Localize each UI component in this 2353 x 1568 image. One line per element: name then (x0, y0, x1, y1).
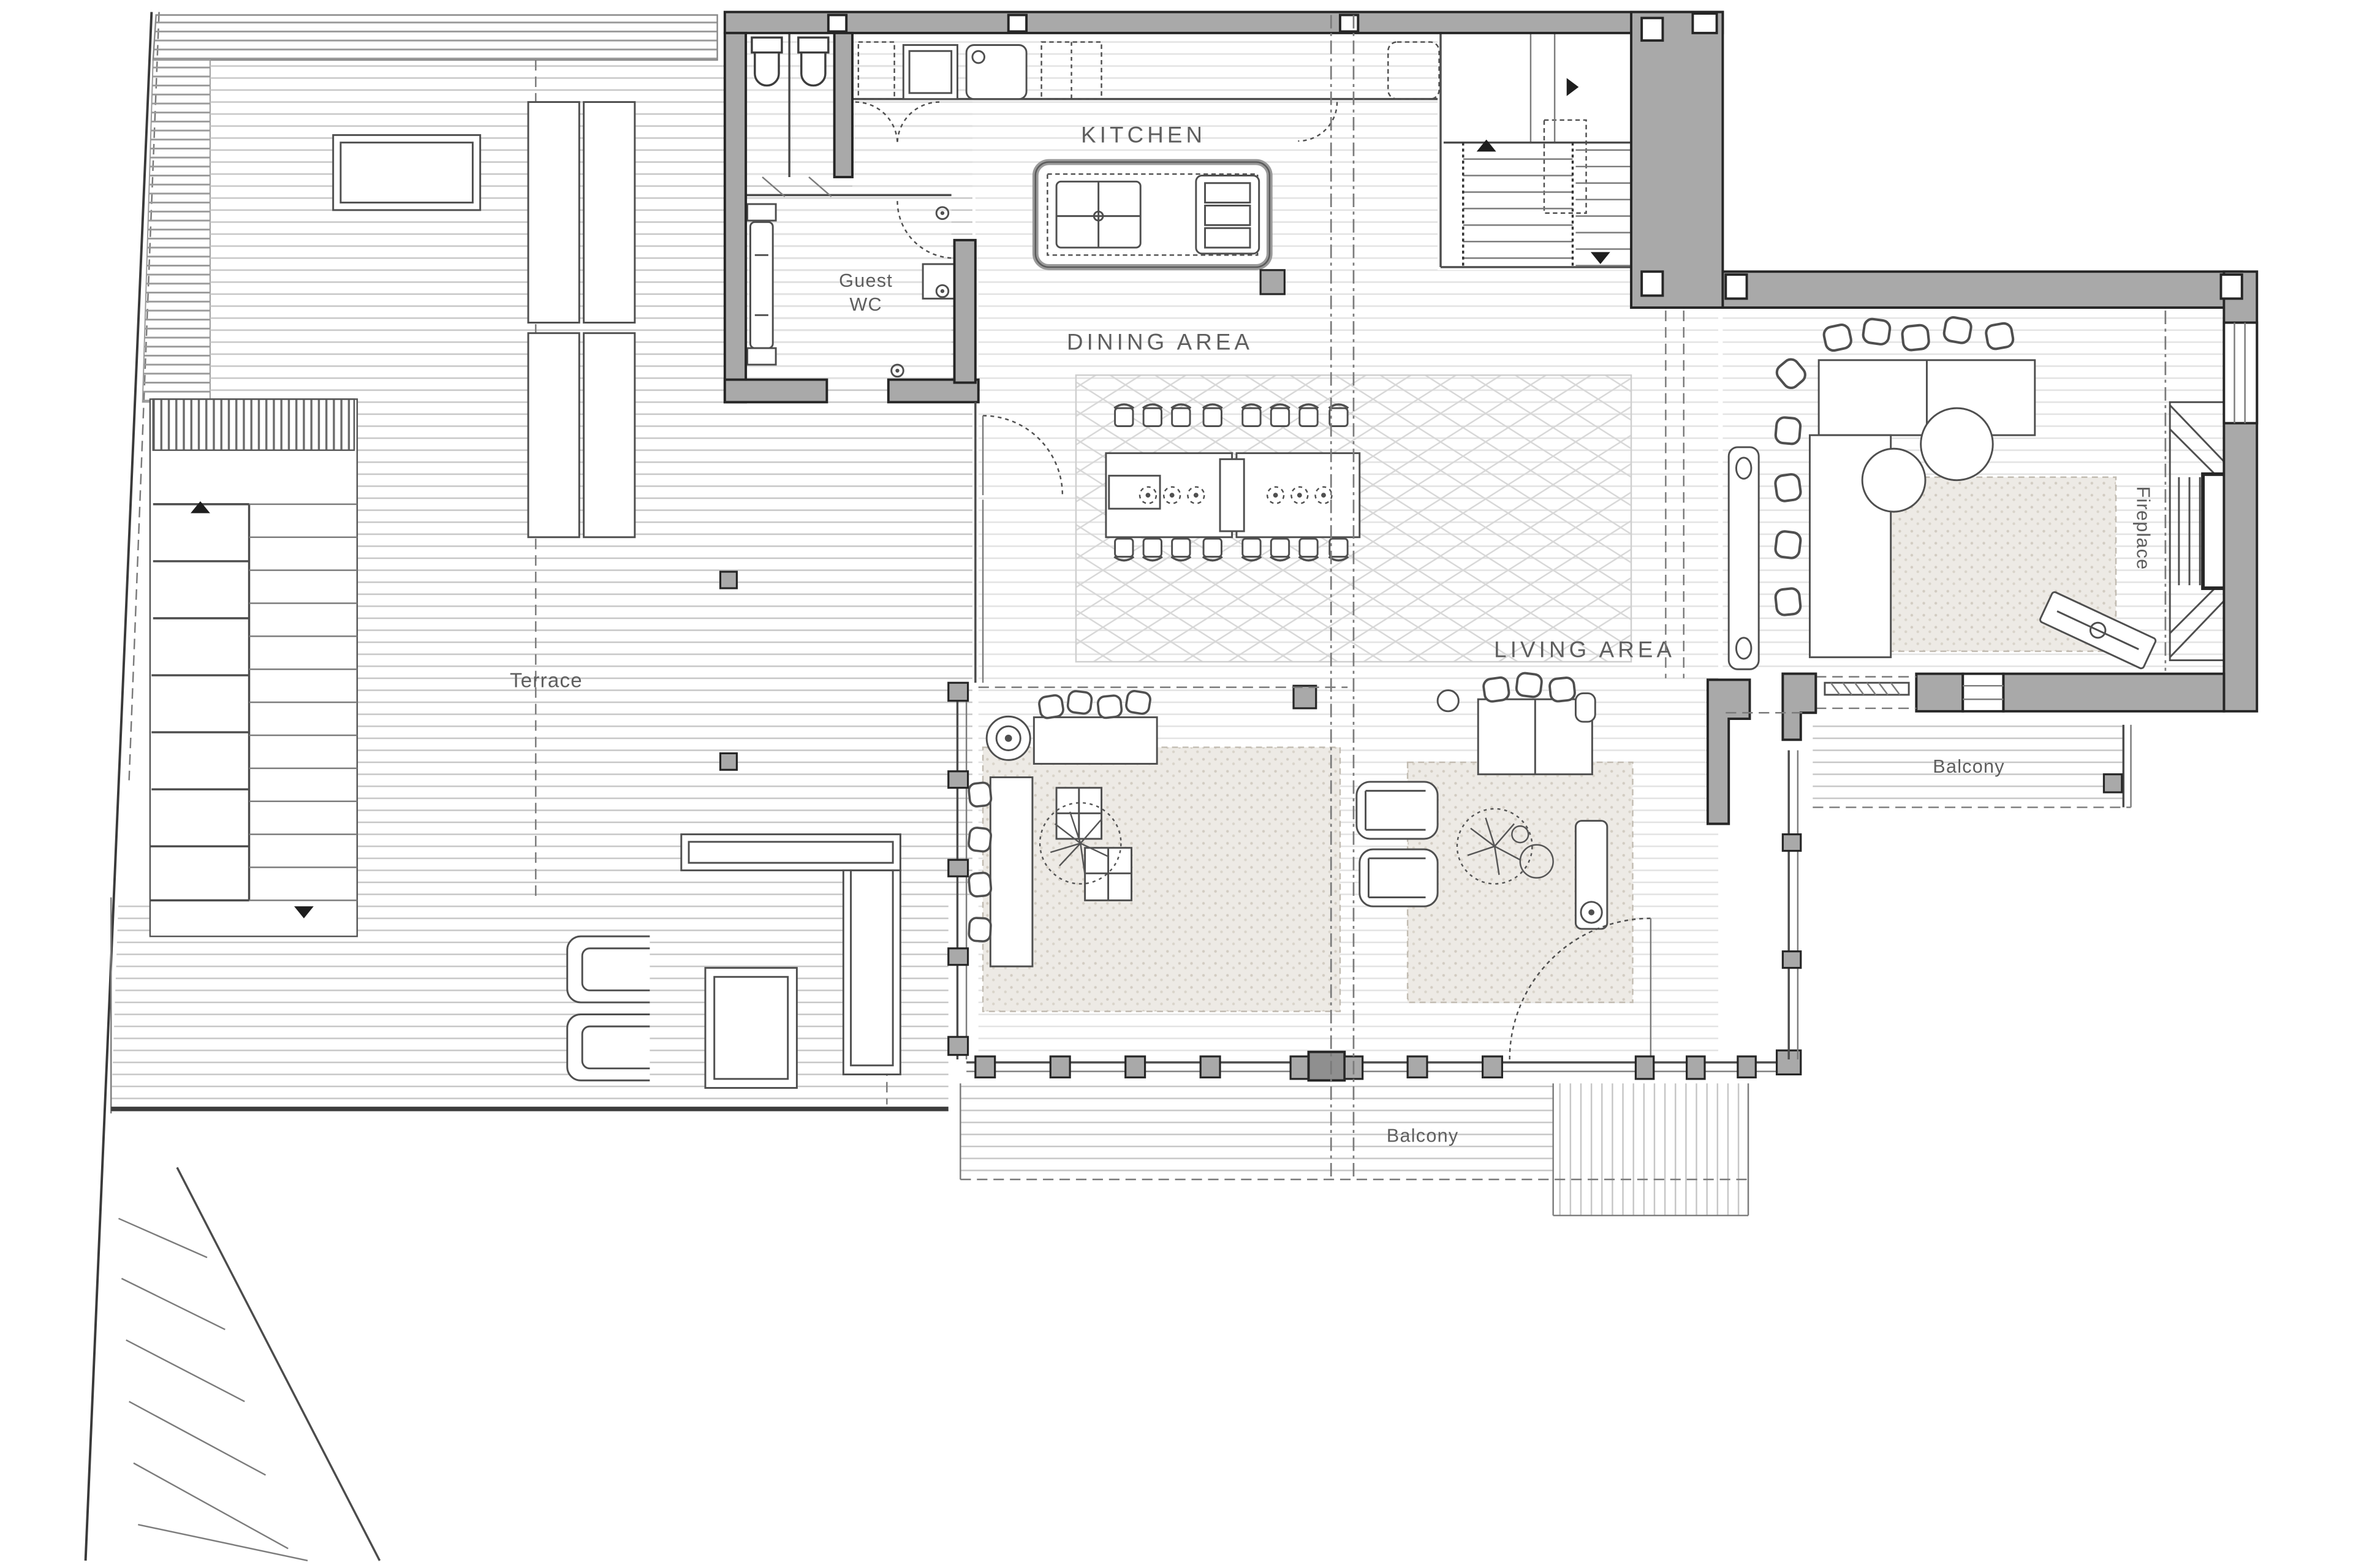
balcony-right-label: Balcony (1933, 756, 2004, 777)
towel-radiator (748, 204, 776, 365)
radiator (1729, 447, 1759, 669)
floor-plan: Balcony Balcony (0, 0, 2353, 1568)
floor-plan-canvas: Balcony Balcony (0, 0, 2353, 1568)
terrace-column (721, 572, 737, 588)
direction-arrow-icon (1567, 78, 1579, 96)
exterior-staircase (150, 399, 357, 936)
island-sink (1056, 181, 1140, 248)
balcony-bottom-label: Balcony (1387, 1126, 1458, 1146)
kitchen-sink (966, 45, 1026, 99)
armchair (1357, 782, 1438, 839)
deck-lounger (705, 968, 797, 1088)
stairs-down-arrow-icon (1591, 252, 1610, 264)
column (1260, 270, 1284, 294)
guest-wc-label-line2: WC (849, 294, 882, 315)
island-cooktop (1196, 176, 1259, 254)
stair-grate (153, 399, 354, 450)
column (1294, 686, 1316, 708)
stair-treads (1463, 150, 1631, 266)
deck-armchair (567, 1015, 650, 1081)
window (1963, 674, 2003, 711)
toilet (798, 37, 828, 85)
daybed (1575, 821, 1607, 929)
armchair (1360, 849, 1438, 906)
terrace-label: Terrace (510, 670, 583, 692)
terrace-side-steps (143, 60, 210, 402)
balcony-post (2104, 775, 2121, 792)
sofa-left (968, 778, 1033, 967)
terrace-top-steps (153, 15, 718, 59)
balcony-door (1635, 1056, 1705, 1079)
side-table (1438, 691, 1458, 711)
garden-steps (118, 1167, 379, 1561)
guest-wc-label-line1: Guest (839, 270, 893, 291)
terrace-door (1290, 1052, 1363, 1081)
terrace-table (333, 135, 480, 210)
interior-staircase (1441, 33, 1635, 267)
window (2224, 323, 2257, 423)
balcony-right: Balcony (1813, 725, 2131, 808)
oven (903, 45, 957, 99)
fireplace-label: Fireplace (2132, 487, 2153, 570)
wc-sink (923, 264, 957, 298)
corner-pillar (1708, 680, 1750, 824)
dining-table (1106, 453, 1360, 537)
dining-area: DINING AREA (1067, 330, 1631, 662)
balcony-door-opening (1816, 676, 1916, 708)
dining-label: DINING AREA (1067, 330, 1253, 355)
deck-armchair (567, 936, 650, 1002)
terrace-column (721, 753, 737, 770)
living-rug (983, 748, 1340, 1012)
sofa-arm-roll (1575, 693, 1595, 722)
kitchen-label: KITCHEN (1081, 123, 1206, 148)
stairs-up-arrow-icon (1477, 140, 1496, 152)
kitchen-island (1036, 162, 1270, 267)
living-label: LIVING AREA (1494, 637, 1675, 662)
round-side-table (987, 716, 1030, 760)
toilet (752, 37, 782, 85)
